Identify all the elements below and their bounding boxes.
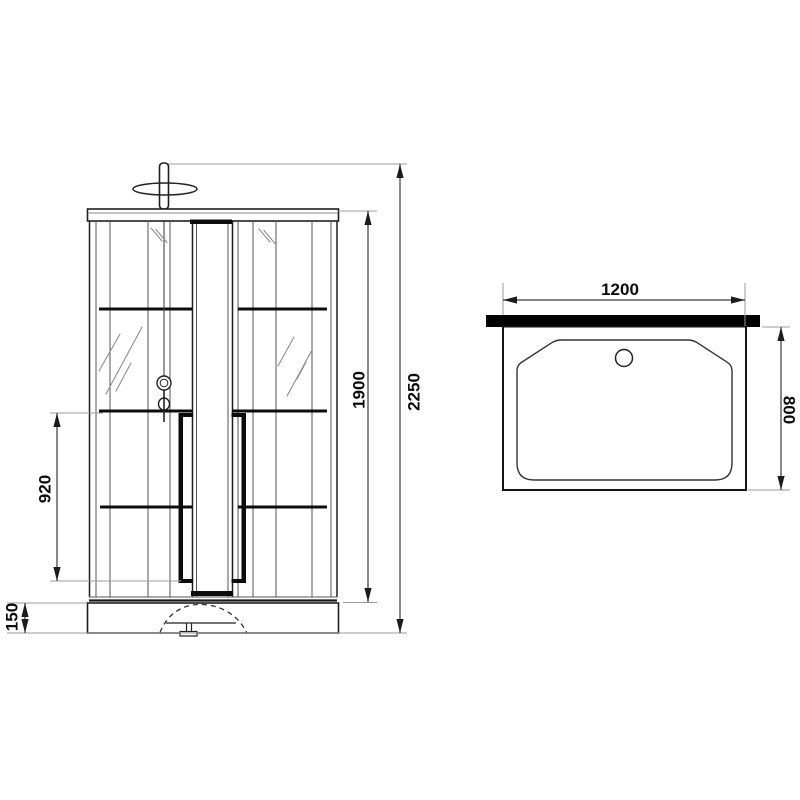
frame-bar bbox=[238, 308, 327, 311]
handle-stub bbox=[232, 579, 247, 583]
frame-bar bbox=[100, 506, 192, 509]
handle-stub bbox=[232, 413, 247, 417]
dim-label-total-height: 2250 bbox=[404, 373, 423, 411]
dim-label-depth: 800 bbox=[780, 396, 799, 424]
top-rail bbox=[88, 209, 339, 221]
glint-line bbox=[278, 337, 294, 366]
frame-bars bbox=[99, 308, 327, 509]
front-view bbox=[88, 163, 339, 636]
glint-line bbox=[106, 327, 142, 394]
dim-label-tray-height: 150 bbox=[2, 603, 21, 631]
back-wall-profile bbox=[486, 315, 760, 327]
glass-panels bbox=[90, 221, 338, 597]
glint-line bbox=[287, 350, 312, 396]
glass-glints bbox=[99, 228, 312, 396]
dim-label-cabin-height: 1900 bbox=[349, 371, 368, 409]
drawing-canvas: 2250 1900 920 150 1200 800 bbox=[0, 0, 800, 800]
shower-arm bbox=[160, 163, 169, 209]
frame-bar bbox=[238, 506, 327, 509]
glint-line bbox=[116, 363, 131, 391]
pillar-top-cap bbox=[190, 220, 232, 225]
drain-hole bbox=[616, 350, 633, 367]
glint-line bbox=[297, 362, 306, 379]
frame-bar bbox=[99, 308, 192, 311]
right-door-handle bbox=[242, 413, 247, 583]
dim-label-door-height: 920 bbox=[35, 475, 54, 503]
handle-stub bbox=[179, 413, 194, 417]
tray-skirt bbox=[88, 603, 339, 633]
door-handles bbox=[179, 413, 247, 583]
base-tray bbox=[88, 603, 339, 636]
left-door-handle bbox=[179, 413, 184, 583]
foot-plate bbox=[180, 632, 197, 637]
pillar-bottom-cap bbox=[191, 591, 233, 596]
shower-head bbox=[133, 163, 197, 209]
mixer-column bbox=[157, 221, 171, 422]
plan-view bbox=[486, 315, 760, 490]
shower-cabin-dimension-drawing: 2250 1900 920 150 1200 800 bbox=[0, 0, 800, 800]
mixer-knob-inner bbox=[160, 379, 168, 387]
dim-label-width: 1200 bbox=[601, 280, 639, 299]
frame-bar bbox=[232, 410, 327, 413]
frame-bar bbox=[99, 410, 192, 413]
